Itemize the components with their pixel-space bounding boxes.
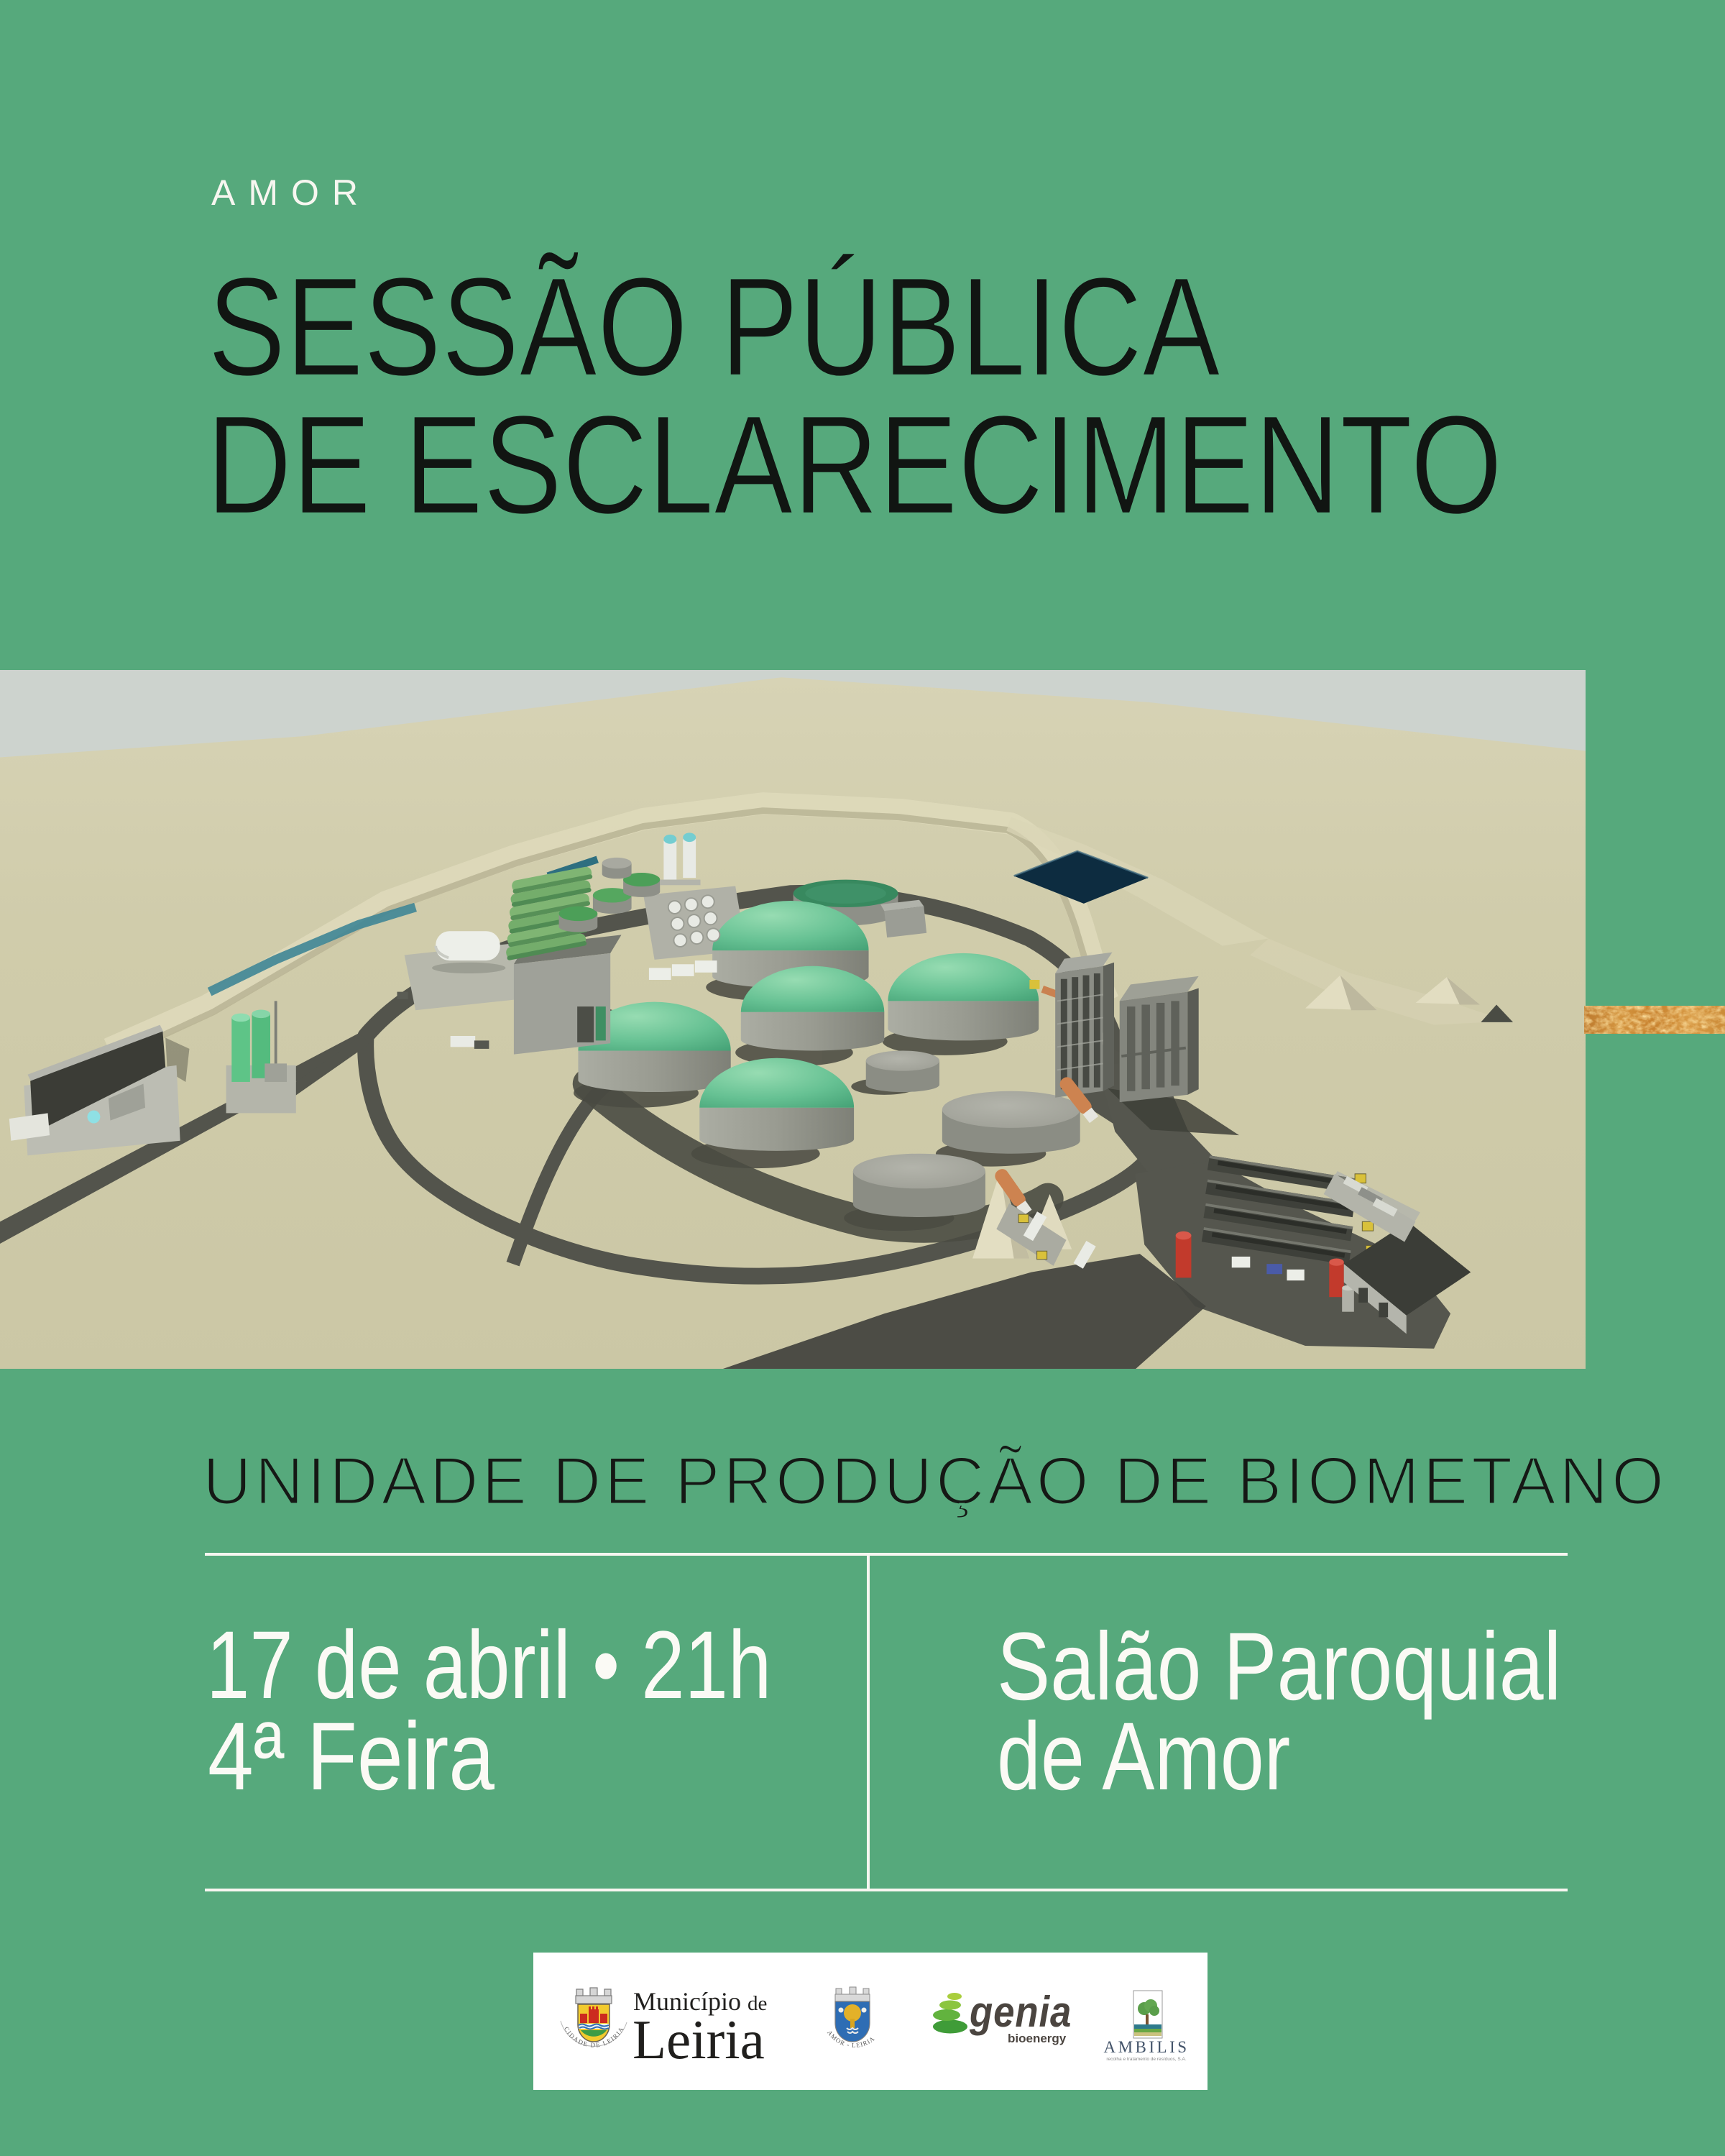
svg-text:bioenergy: bioenergy: [1008, 2032, 1067, 2045]
svg-text:Leiria: Leiria: [632, 2009, 765, 2070]
svg-text:genia: genia: [969, 1988, 1072, 2036]
svg-text:recolha e tratamento de resídu: recolha e tratamento de resíduos, S.A.: [1106, 2057, 1186, 2062]
svg-text:AMBILIS: AMBILIS: [1103, 2038, 1189, 2056]
